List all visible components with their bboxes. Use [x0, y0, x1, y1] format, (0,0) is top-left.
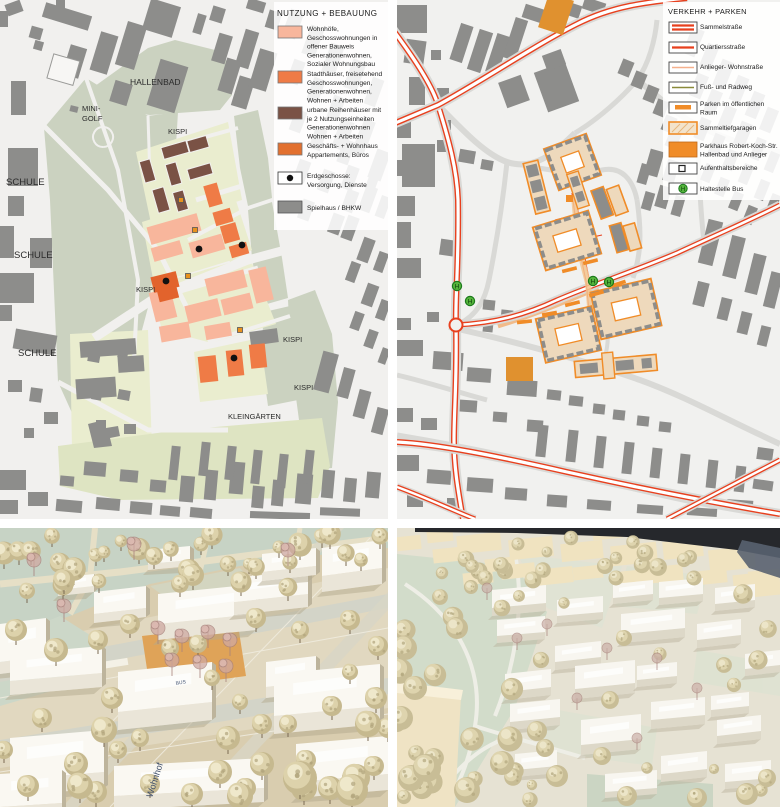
svg-text:KISPI: KISPI	[136, 285, 155, 294]
svg-text:Generationenwohnen,: Generationenwohnen,	[307, 52, 372, 59]
svg-text:GOLF: GOLF	[82, 114, 103, 123]
svg-text:Geschäfts- + Wohnhaus: Geschäfts- + Wohnhaus	[307, 143, 379, 150]
svg-text:Stadthäuser, freisetehend: Stadthäuser, freisetehend	[307, 71, 382, 78]
svg-text:Spielhaus / BHKW: Spielhaus / BHKW	[307, 205, 362, 212]
svg-text:Sammelstraße: Sammelstraße	[700, 24, 743, 31]
svg-text:offener Bauweis: offener Bauweis	[307, 44, 355, 51]
svg-text:Anlieger- Wohnstraße: Anlieger- Wohnstraße	[700, 64, 763, 71]
svg-text:KLEINGÄRTEN: KLEINGÄRTEN	[228, 412, 281, 421]
svg-text:KISPI: KISPI	[168, 127, 187, 136]
svg-text:Wohnhöfe,: Wohnhöfe,	[307, 26, 339, 33]
svg-text:MINI-: MINI-	[82, 104, 101, 113]
svg-text:Quartiersstraße: Quartiersstraße	[700, 44, 746, 51]
svg-text:Parken im öffentlichen: Parken im öffentlichen	[700, 101, 765, 108]
svg-text:Appartements, Büros: Appartements, Büros	[307, 152, 370, 159]
svg-text:Versorgung, Dienste: Versorgung, Dienste	[307, 182, 367, 189]
svg-text:KISPI: KISPI	[283, 335, 302, 344]
svg-text:je 2 Nutzungseinheiten: je 2 Nutzungseinheiten	[306, 116, 374, 123]
svg-text:NUTZUNG + BEBAUUNG: NUTZUNG + BEBAUUNG	[277, 9, 377, 18]
svg-text:SCHULE: SCHULE	[6, 177, 45, 188]
svg-text:Haltestelle Bus: Haltestelle Bus	[700, 186, 744, 193]
svg-text:H: H	[468, 298, 473, 305]
svg-text:H: H	[455, 283, 460, 290]
svg-text:Wohnen + Arbeiten: Wohnen + Arbeiten	[307, 97, 363, 104]
svg-text:Sozialer Wohnungsbau: Sozialer Wohnungsbau	[307, 61, 375, 68]
svg-text:Raum: Raum	[700, 110, 717, 117]
svg-text:Hallenbad und Anlieger: Hallenbad und Anlieger	[700, 152, 768, 159]
svg-text:Parkhaus Robert-Koch-Str.: Parkhaus Robert-Koch-Str.	[700, 143, 778, 150]
svg-text:urbane Reihenhäuser mit: urbane Reihenhäuser mit	[307, 107, 381, 114]
svg-text:KISPI: KISPI	[294, 383, 313, 392]
svg-text:Geschosswohnungen,: Geschosswohnungen,	[307, 80, 372, 87]
svg-text:Fuß- und Radweg: Fuß- und Radweg	[700, 84, 752, 91]
svg-text:HALLENBAD: HALLENBAD	[130, 77, 181, 87]
svg-text:Wohnen + Arbeiten: Wohnen + Arbeiten	[307, 133, 363, 140]
svg-text:Aufenthaltsbereiche: Aufenthaltsbereiche	[700, 165, 758, 172]
svg-text:Generationenwohnen: Generationenwohnen	[307, 125, 370, 132]
svg-text:H: H	[607, 279, 612, 286]
svg-text:SCHULE: SCHULE	[14, 250, 53, 261]
svg-text:Erdgeschosse:: Erdgeschosse:	[307, 173, 351, 180]
svg-text:Sammeltiefgaragen: Sammeltiefgaragen	[700, 125, 757, 132]
svg-text:SCHULE: SCHULE	[18, 348, 57, 359]
svg-text:Generationenwohnen,: Generationenwohnen,	[307, 89, 372, 96]
svg-text:Geschosswohnungen in: Geschosswohnungen in	[307, 35, 378, 42]
svg-text:H: H	[681, 187, 685, 193]
svg-text:H: H	[591, 278, 596, 285]
svg-text:VERKEHR + PARKEN: VERKEHR + PARKEN	[668, 7, 747, 16]
